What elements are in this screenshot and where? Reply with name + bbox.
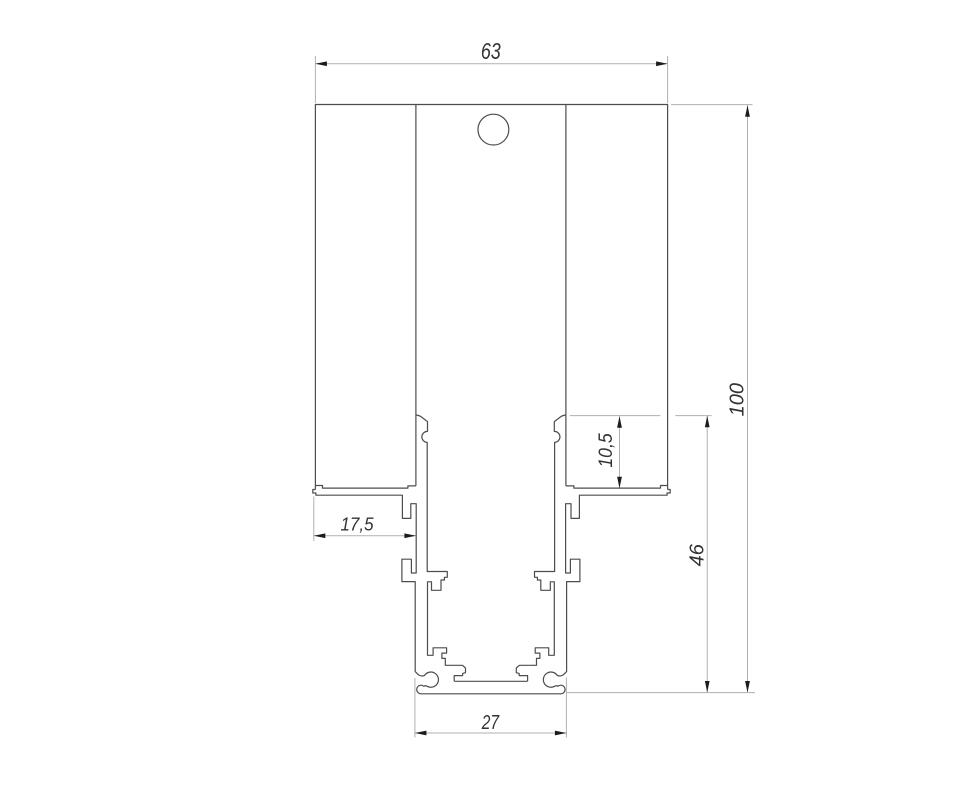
- svg-text:63: 63: [481, 39, 501, 65]
- svg-text:100: 100: [727, 383, 749, 416]
- svg-text:10,5: 10,5: [594, 433, 616, 468]
- svg-text:27: 27: [481, 711, 500, 733]
- svg-text:17,5: 17,5: [340, 514, 373, 535]
- svg-text:46: 46: [686, 543, 708, 566]
